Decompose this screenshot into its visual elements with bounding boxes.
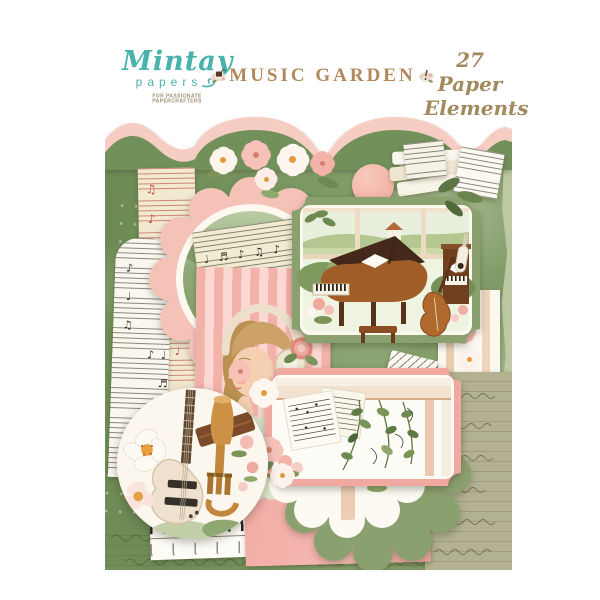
title-text: MUSIC GARDEN	[229, 65, 415, 87]
leaf-icon	[316, 175, 340, 191]
guitar-and-trumpet-circle	[115, 386, 270, 541]
product-title: MUSIC GARDEN	[210, 54, 435, 98]
music-notes: ♪ ♩ ♫	[121, 261, 137, 337]
sheet-music-page	[283, 391, 341, 451]
leaf-icon	[260, 188, 279, 199]
pink-rose-icon	[247, 146, 265, 164]
white-rose-icon	[283, 150, 303, 170]
element-count: 27 Paper Elements	[424, 48, 516, 120]
leaf-icon	[456, 189, 484, 205]
die-cut-collage: ♫ ♪ ♬ ♪ ♩ ♪ ♩ ♫ ♩ ♬ ♪ ♫ ♪	[105, 112, 512, 570]
white-rose-icon	[259, 172, 273, 186]
pink-rose-icon	[233, 364, 247, 378]
leaf-icon	[443, 198, 466, 219]
ivy-window-scene	[274, 378, 451, 478]
white-rose-icon	[462, 352, 476, 366]
white-rose-icon	[215, 152, 232, 169]
music-notes: ♩ ♬ ♪ ♫ ♪	[203, 242, 284, 266]
brand-word-text: papers	[136, 75, 203, 89]
piano-flowers-icon	[210, 54, 227, 98]
pink-rose-icon	[315, 156, 330, 171]
dark-leaves	[435, 174, 491, 224]
piano-scene	[297, 208, 475, 343]
count-line1: 27 Paper	[424, 48, 516, 96]
product-image: Mintay papers FOR PASSIONATE PAPERCRAFTE…	[0, 0, 600, 600]
pink-window-frame	[265, 368, 461, 486]
